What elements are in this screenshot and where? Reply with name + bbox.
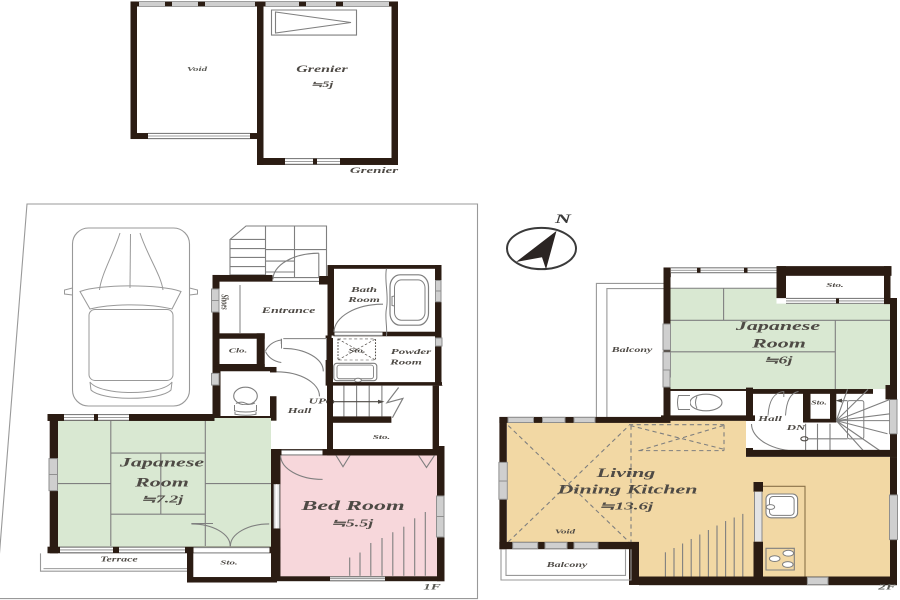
svg-text:1F: 1F — [423, 582, 440, 592]
svg-text:Bed Room: Bed Room — [300, 499, 405, 514]
svg-text:≒5.5j: ≒5.5j — [331, 518, 375, 529]
svg-text:Hall: Hall — [757, 415, 782, 423]
svg-text:N: N — [554, 212, 572, 226]
svg-text:Japanese: Japanese — [119, 455, 205, 469]
svg-text:Grenier: Grenier — [296, 64, 349, 75]
svg-text:Sto.: Sto. — [811, 400, 827, 406]
svg-text:Sto.: Sto. — [826, 281, 843, 288]
svg-text:DN: DN — [785, 424, 805, 432]
svg-text:Hall: Hall — [286, 407, 311, 415]
svg-text:Void: Void — [187, 65, 208, 72]
svg-text:Sto.: Sto. — [348, 347, 365, 354]
svg-text:Balcony: Balcony — [610, 346, 653, 354]
svg-text:Entrance: Entrance — [260, 307, 315, 315]
svg-text:Grenier: Grenier — [350, 165, 399, 175]
svg-text:≒13.6j: ≒13.6j — [599, 500, 654, 512]
svg-text:UP: UP — [309, 398, 327, 406]
svg-text:Bath: Bath — [350, 286, 377, 294]
svg-text:Dining Kitchen: Dining Kitchen — [556, 482, 697, 496]
svg-text:Clo.: Clo. — [229, 347, 248, 354]
svg-text:Japanese: Japanese — [735, 319, 821, 333]
svg-text:Room: Room — [347, 296, 380, 304]
svg-text:Room: Room — [751, 336, 806, 350]
svg-text:≒6j: ≒6j — [763, 355, 793, 366]
svg-text:Terrace: Terrace — [100, 556, 138, 564]
svg-text:≒5j: ≒5j — [311, 81, 335, 89]
svg-text:Sto.: Sto. — [220, 559, 237, 566]
svg-text:Sto.: Sto. — [373, 433, 390, 440]
svg-text:Powder: Powder — [391, 348, 432, 356]
svg-text:Shoes: Shoes — [219, 294, 231, 310]
svg-text:≒7.2j: ≒7.2j — [141, 494, 185, 505]
svg-text:Balcony: Balcony — [545, 561, 588, 569]
svg-text:Living: Living — [595, 466, 655, 480]
svg-text:Room: Room — [134, 475, 189, 489]
svg-text:Room: Room — [389, 359, 422, 367]
svg-text:2F: 2F — [877, 582, 896, 592]
svg-text:Void: Void — [555, 528, 576, 535]
